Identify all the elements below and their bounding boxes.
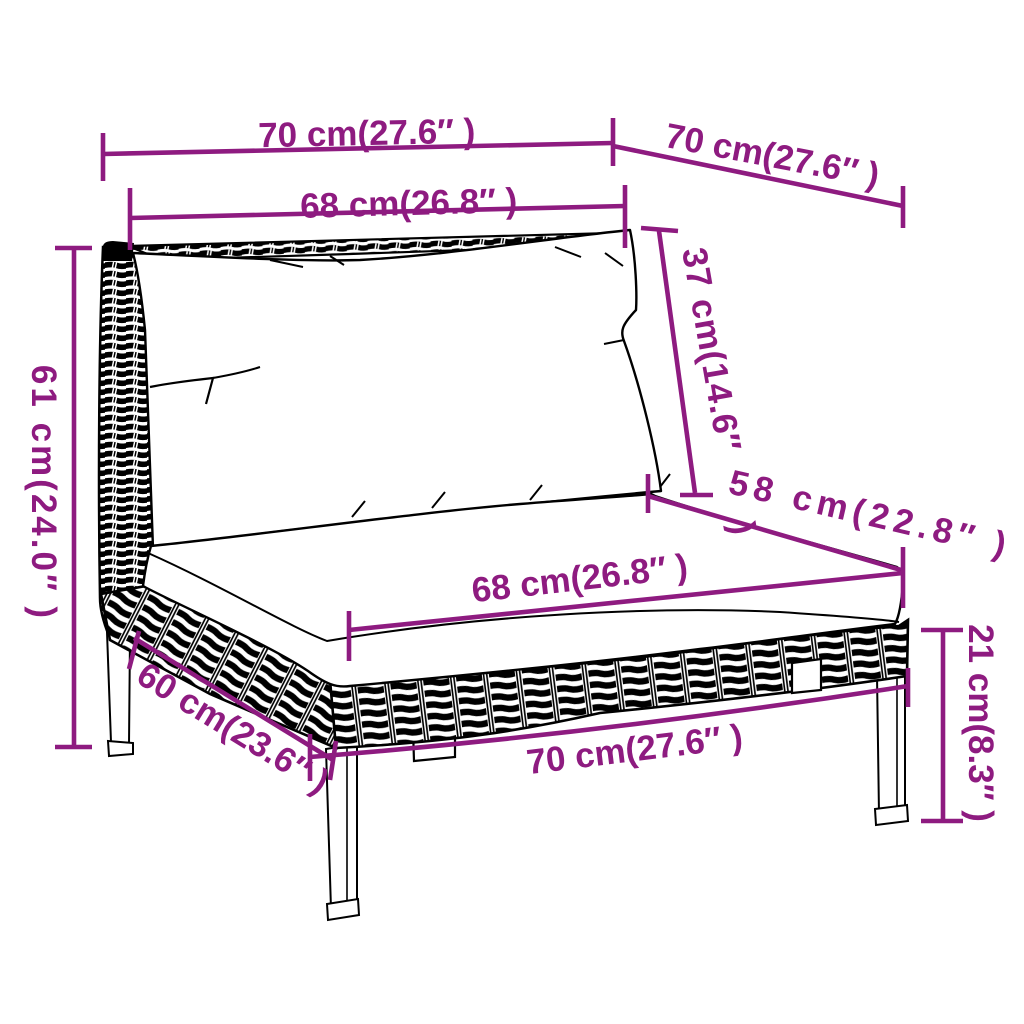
svg-text:70 cm(27.6″ ): 70 cm(27.6″ ) [258, 112, 476, 156]
svg-text:68 cm(26.8″ ): 68 cm(26.8″ ) [300, 181, 518, 226]
svg-text:21 cm(8.3″ ): 21 cm(8.3″ ) [961, 624, 1000, 822]
svg-text:61 cm(24.0″ ): 61 cm(24.0″ ) [24, 365, 63, 621]
